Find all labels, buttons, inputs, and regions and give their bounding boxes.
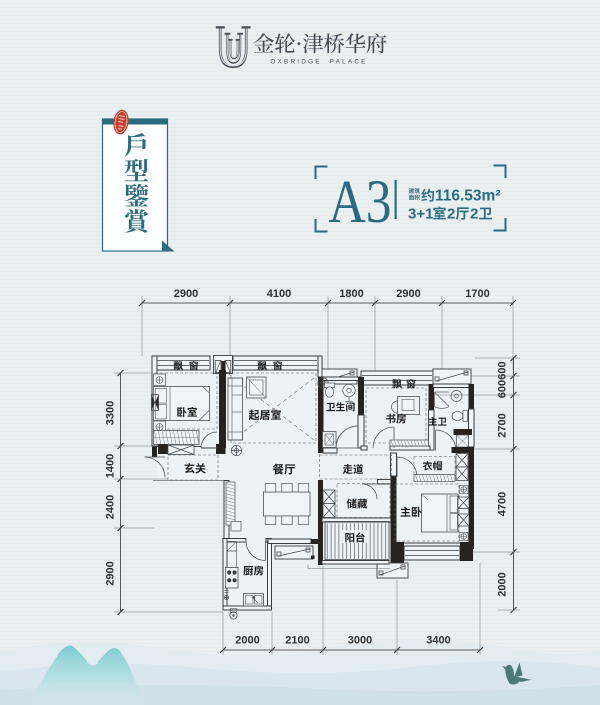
svg-text:A3: A3	[329, 169, 392, 236]
svg-text:3000: 3000	[348, 635, 372, 647]
svg-text:600: 600	[497, 361, 509, 379]
svg-text:600: 600	[497, 380, 509, 398]
svg-text:3+1: 3+1	[408, 206, 433, 223]
svg-text:1400: 1400	[105, 454, 117, 478]
svg-text:2900: 2900	[105, 561, 117, 585]
svg-text:2: 2	[470, 206, 478, 223]
svg-text:4700: 4700	[497, 492, 509, 516]
svg-text:1800: 1800	[339, 288, 363, 300]
svg-text:2000: 2000	[235, 635, 259, 647]
svg-text:2100: 2100	[285, 635, 309, 647]
svg-text:2700: 2700	[497, 413, 509, 437]
svg-text:1700: 1700	[465, 288, 489, 300]
svg-text:3300: 3300	[105, 401, 117, 425]
svg-text:OXBRIDGE PALACE: OXBRIDGE PALACE	[270, 58, 367, 65]
svg-text:3400: 3400	[426, 635, 450, 647]
svg-text:4100: 4100	[267, 288, 291, 300]
svg-text:2900: 2900	[396, 288, 420, 300]
svg-text:2900: 2900	[174, 288, 198, 300]
svg-text:2400: 2400	[105, 495, 117, 519]
svg-text:116.53m²: 116.53m²	[435, 188, 501, 205]
svg-text:2: 2	[447, 206, 455, 223]
svg-text:2000: 2000	[497, 572, 509, 596]
